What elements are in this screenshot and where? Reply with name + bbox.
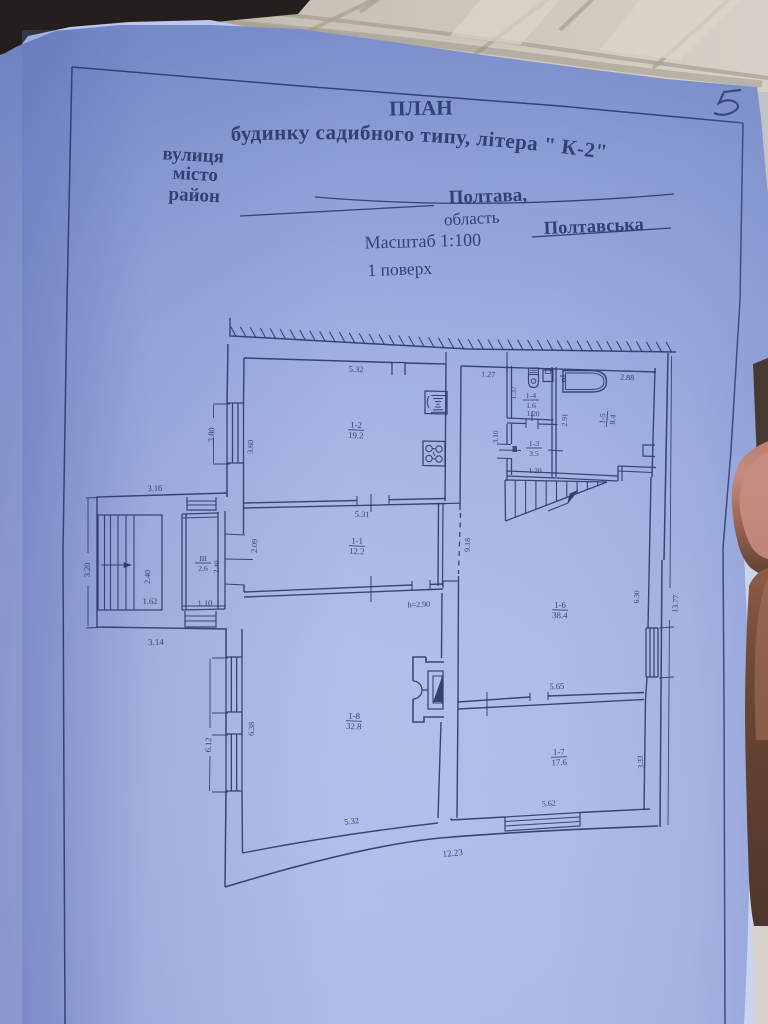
svg-text:1-4: 1-4 [526, 391, 536, 400]
svg-text:1.62: 1.62 [142, 596, 157, 606]
svg-text:3.14: 3.14 [148, 637, 165, 648]
svg-text:1-7: 1-7 [553, 747, 566, 757]
svg-text:5.31: 5.31 [354, 509, 369, 520]
svg-text:17.6: 17.6 [551, 757, 567, 768]
svg-text:6.30: 6.30 [632, 590, 641, 604]
svg-text:3.80: 3.80 [206, 427, 217, 442]
svg-text:ПЛАН: ПЛАН [389, 95, 453, 120]
svg-text:5.62: 5.62 [542, 799, 557, 809]
svg-text:1.10: 1.10 [197, 598, 212, 608]
svg-text:1.27: 1.27 [481, 370, 495, 380]
svg-text:19.2: 19.2 [348, 430, 364, 441]
svg-text:2.09: 2.09 [250, 539, 259, 553]
svg-text:6.12: 6.12 [203, 737, 214, 752]
svg-text:1 поверх: 1 поверх [367, 258, 433, 280]
svg-text:5.32: 5.32 [348, 364, 363, 375]
svg-text:3.5: 3.5 [529, 449, 539, 458]
svg-text:32.8: 32.8 [346, 721, 362, 732]
svg-text:1-2: 1-2 [350, 420, 362, 430]
svg-text:1-1: 1-1 [351, 536, 363, 546]
svg-text:1-5: 1-5 [597, 413, 607, 424]
svg-text:3.16: 3.16 [147, 483, 162, 494]
svg-text:1-6: 1-6 [554, 600, 567, 610]
svg-text:h=2.90: h=2.90 [408, 600, 431, 610]
svg-text:2.40: 2.40 [212, 560, 221, 574]
svg-text:1-8: 1-8 [348, 711, 361, 721]
svg-text:1.20: 1.20 [526, 409, 540, 418]
svg-text:3.20: 3.20 [82, 562, 92, 577]
svg-text:Полтава,: Полтава, [448, 185, 527, 209]
svg-text:9.18: 9.18 [463, 538, 472, 552]
svg-text:5.32: 5.32 [344, 815, 360, 827]
svg-text:область: область [444, 208, 501, 230]
svg-text:6.38: 6.38 [247, 722, 256, 736]
svg-text:38.4: 38.4 [552, 610, 568, 620]
svg-text:1.20: 1.20 [528, 466, 542, 475]
svg-text:8.4: 8.4 [608, 414, 618, 425]
svg-text:13.77: 13.77 [670, 594, 681, 613]
svg-text:2.40: 2.40 [143, 570, 152, 584]
svg-text:12.2: 12.2 [349, 546, 365, 557]
svg-text:2.6: 2.6 [198, 564, 208, 573]
svg-text:3.10: 3.10 [491, 430, 500, 444]
svg-text:5.65: 5.65 [549, 681, 564, 692]
svg-text:1-3: 1-3 [529, 439, 539, 448]
svg-text:3.33: 3.33 [636, 755, 645, 769]
svg-text:1.37: 1.37 [509, 386, 518, 400]
svg-text:місто: місто [172, 163, 218, 186]
svg-text:район: район [168, 184, 221, 208]
svg-text:3.60: 3.60 [246, 440, 256, 454]
svg-text:III: III [199, 554, 207, 563]
svg-text:2.91: 2.91 [560, 413, 569, 427]
svg-text:Масштаб 1:100: Масштаб 1:100 [364, 229, 481, 252]
svg-text:2.88: 2.88 [620, 373, 634, 383]
